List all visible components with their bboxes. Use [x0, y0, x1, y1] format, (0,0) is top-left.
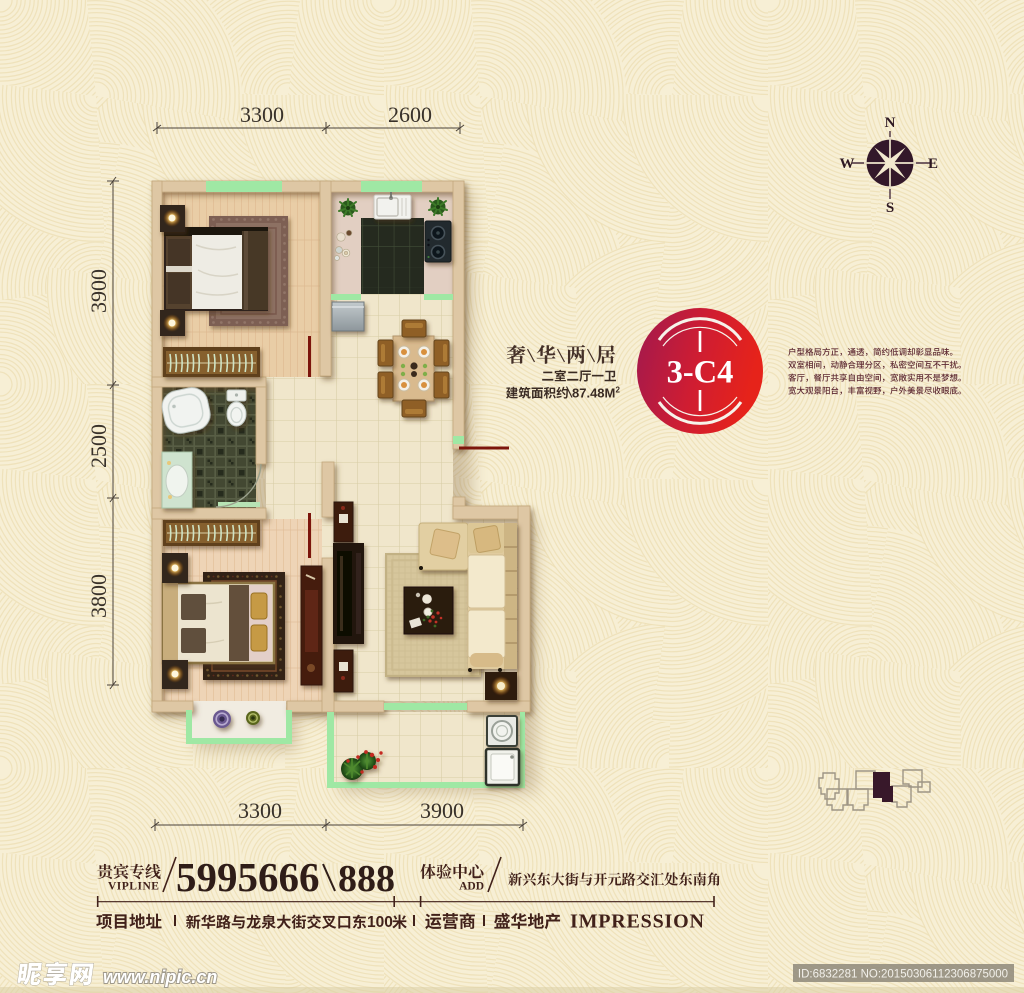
- svg-text:IMPRESSION: IMPRESSION: [570, 911, 705, 933]
- svg-text:5995666: 5995666: [176, 854, 320, 900]
- svg-text:87.48M: 87.48M: [572, 386, 615, 401]
- svg-text:100: 100: [367, 914, 393, 931]
- svg-text:ID:6832281 NO:2015030611230687: ID:6832281 NO:20150306112306875000: [798, 969, 1008, 981]
- svg-text:3300: 3300: [238, 798, 282, 823]
- svg-text:2500: 2500: [86, 424, 111, 468]
- svg-text:ADD: ADD: [459, 881, 484, 893]
- svg-text:VIPLINE: VIPLINE: [108, 881, 159, 893]
- svg-text:W: W: [840, 156, 855, 172]
- svg-text:2: 2: [616, 386, 621, 395]
- svg-text:S: S: [886, 200, 894, 216]
- svg-text:3800: 3800: [86, 574, 111, 618]
- svg-text:2600: 2600: [388, 102, 432, 127]
- svg-text:N: N: [885, 115, 896, 131]
- svg-text:888: 888: [338, 858, 395, 900]
- svg-text:3900: 3900: [420, 798, 464, 823]
- svg-text:www.nipic.cn: www.nipic.cn: [103, 967, 217, 987]
- svg-text:E: E: [928, 156, 938, 172]
- svg-text:3-C4: 3-C4: [667, 355, 734, 391]
- svg-text:3300: 3300: [240, 102, 284, 127]
- svg-text:3900: 3900: [86, 269, 111, 313]
